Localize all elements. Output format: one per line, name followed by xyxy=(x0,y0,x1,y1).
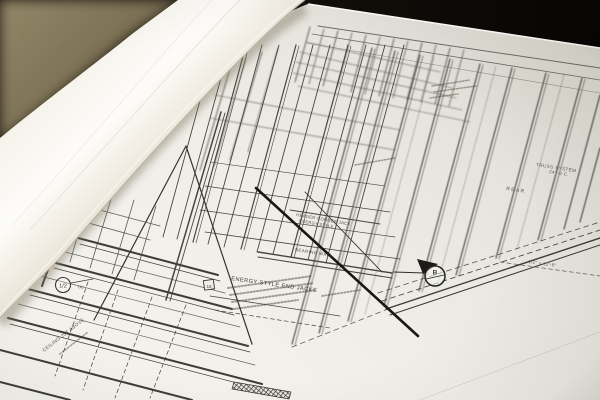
vignette-overlay xyxy=(0,0,600,400)
blueprint-photo: B 1/2 OC 15 HEADER CORNER JACK ENERGY ST… xyxy=(0,0,600,400)
blueprint-scene: B 1/2 OC 15 HEADER CORNER JACK ENERGY ST… xyxy=(0,0,600,400)
